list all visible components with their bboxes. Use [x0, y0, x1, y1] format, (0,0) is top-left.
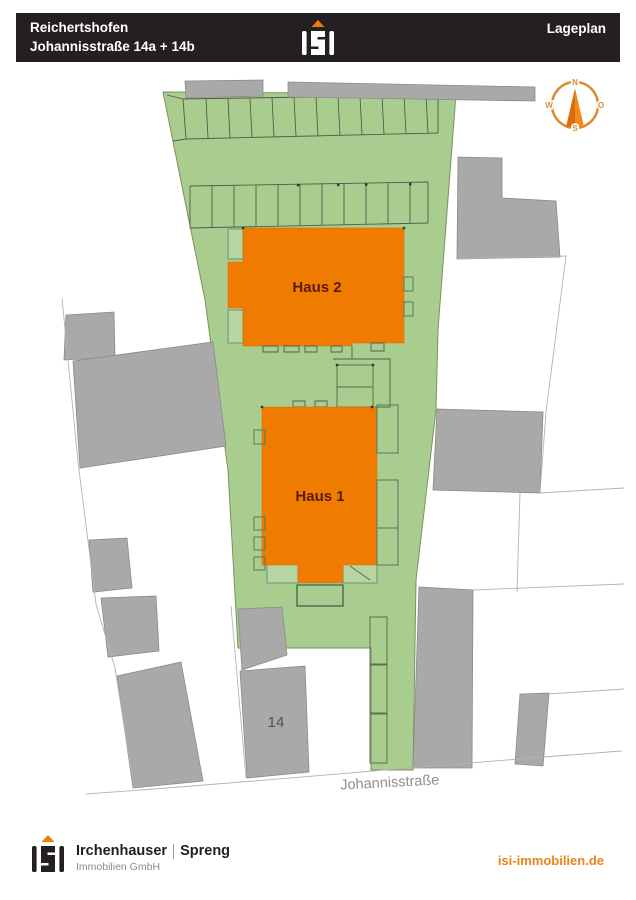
haus-2-label: Haus 2 — [292, 279, 341, 296]
company-subtitle: Immobilien GmbH — [76, 861, 230, 873]
header-location-line2: Johannisstraße 14a + 14b — [30, 38, 195, 57]
header-location: Reichertshofen Johannisstraße 14a + 14b — [30, 19, 195, 57]
company-block: Irchenhauser Spreng Immobilien GmbH — [76, 843, 230, 873]
svg-text:W: W — [545, 101, 553, 110]
neighbor-building — [457, 157, 560, 259]
haus-2: Haus 2 — [228, 228, 413, 359]
neighbor-building — [64, 312, 115, 360]
site-plan: Haus 2 Haus 1 — [0, 0, 636, 900]
haus-1: Haus 1 — [254, 405, 398, 606]
header-location-line1: Reichertshofen — [30, 19, 195, 38]
footer: Irchenhauser Spreng Immobilien GmbH isi-… — [0, 825, 636, 895]
page-title: Lageplan — [547, 21, 606, 36]
neighbor-building — [238, 607, 287, 670]
haus-2-terrace — [228, 229, 243, 259]
isi-logo-icon — [294, 17, 342, 64]
haus-1-label: Haus 1 — [295, 488, 344, 505]
company-name-divider — [173, 844, 174, 859]
neighbor-building — [117, 662, 203, 788]
lageplan-page: Haus 2 Haus 1 — [0, 0, 636, 900]
website-text: isi-immobilien.de — [498, 853, 604, 868]
neighbor-building — [89, 538, 132, 592]
company-name-right: Spreng — [180, 843, 230, 859]
svg-text:O: O — [598, 101, 604, 110]
neighbor-house-number: 14 — [268, 714, 285, 731]
neighbor-building — [73, 342, 226, 468]
north-needle-icon — [566, 88, 575, 127]
neighbor-building — [101, 596, 159, 657]
neighbor-building — [515, 693, 549, 766]
company-name-left: Irchenhauser — [76, 843, 167, 859]
svg-text:S: S — [572, 124, 578, 133]
compass-rose-icon: N O S W — [545, 78, 604, 133]
haus-2-terrace — [228, 310, 243, 343]
isi-logo-footer-icon — [28, 830, 68, 885]
svg-text:N: N — [572, 78, 578, 87]
neighbor-building — [433, 409, 543, 493]
neighbor-building — [185, 80, 263, 98]
neighbor-building — [413, 587, 473, 768]
street-name-label: Johannisstraße — [340, 772, 440, 793]
haus-1-terrace — [267, 563, 298, 583]
header-bar: Reichertshofen Johannisstraße 14a + 14b … — [16, 13, 620, 62]
